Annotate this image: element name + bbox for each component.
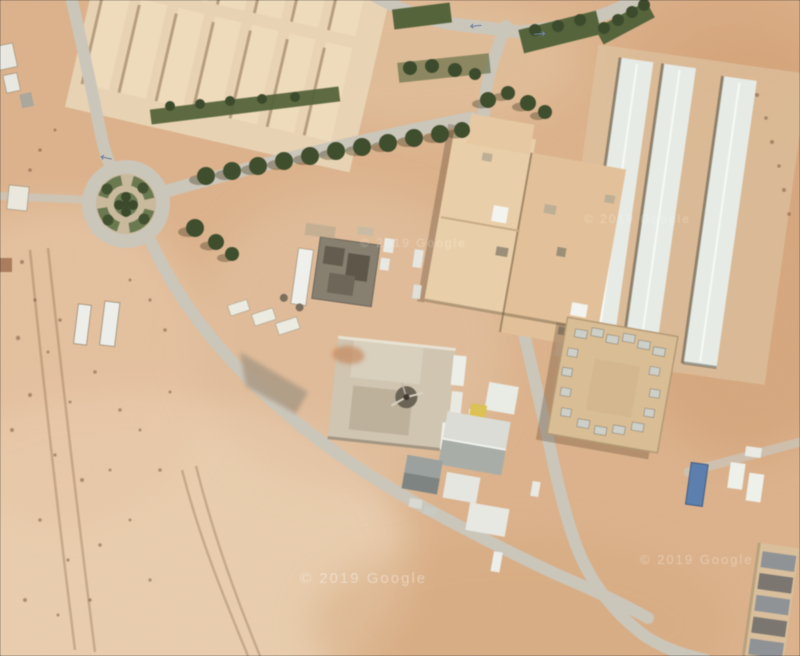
satellite-map-viewport[interactable]: ← ← → © 2019 Google © 2019 Google © 2019… [0,0,800,656]
top-road-west-arrow-icon: ← [465,12,486,36]
hvac-rooftop-building [536,315,678,460]
top-road-east-arrow-icon: → [529,20,549,43]
white-cabin [7,185,29,211]
map-canvas [0,0,800,656]
construction-site-lower [324,335,456,451]
